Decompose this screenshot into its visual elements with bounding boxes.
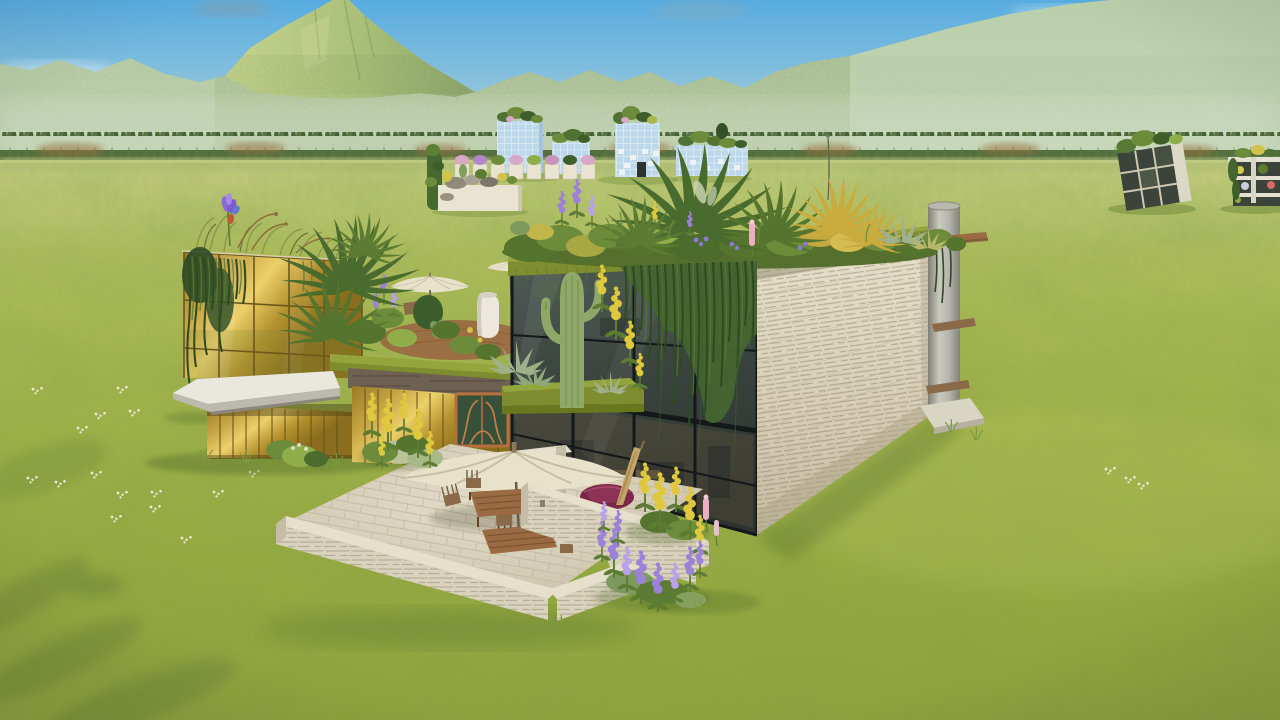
vignette	[0, 0, 1280, 720]
world-scene	[0, 0, 1280, 720]
game-viewport[interactable]	[0, 0, 1280, 720]
